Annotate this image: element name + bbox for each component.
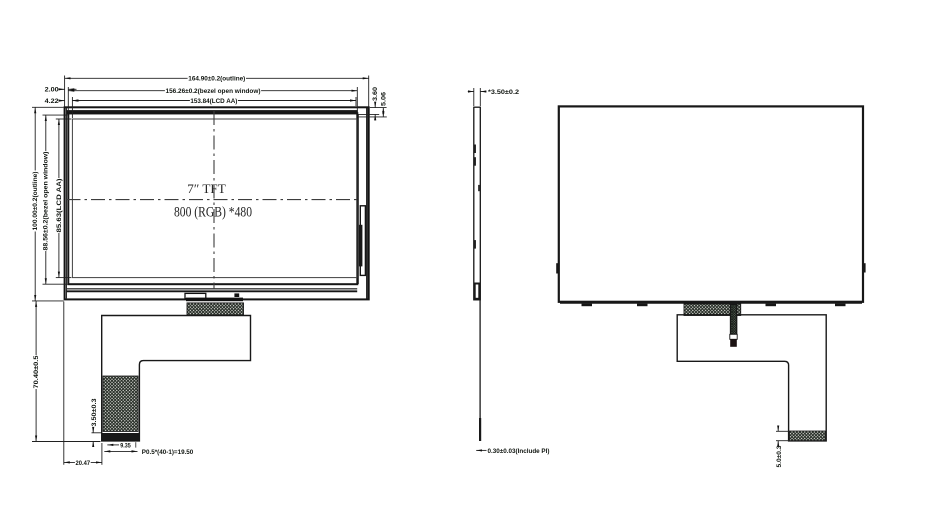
svg-text:164.90±0.2(outline): 164.90±0.2(outline) bbox=[188, 76, 245, 83]
svg-text:800 (RGB) *480: 800 (RGB) *480 bbox=[174, 204, 252, 220]
svg-text:7″ TFT: 7″ TFT bbox=[187, 181, 226, 196]
svg-text:0.30±0.03(Include PI): 0.30±0.03(Include PI) bbox=[488, 448, 550, 455]
svg-text:85.63(LCD AA): 85.63(LCD AA) bbox=[56, 179, 63, 233]
svg-text:3.50±0.3: 3.50±0.3 bbox=[91, 398, 98, 426]
svg-text:9.35: 9.35 bbox=[120, 442, 131, 449]
svg-text:3.60: 3.60 bbox=[372, 87, 379, 101]
svg-text:5.0±0.3: 5.0±0.3 bbox=[776, 445, 783, 467]
svg-text:*3.50±0.2: *3.50±0.2 bbox=[488, 89, 519, 96]
svg-text:100.00±0.2(outline): 100.00±0.2(outline) bbox=[32, 172, 39, 231]
svg-text:4.22: 4.22 bbox=[45, 98, 59, 105]
svg-text:5.06: 5.06 bbox=[380, 92, 387, 106]
svg-text:P0.5*(40-1)=19.50: P0.5*(40-1)=19.50 bbox=[142, 449, 194, 456]
svg-text:156.26±0.2(bezel open window): 156.26±0.2(bezel open window) bbox=[166, 88, 261, 95]
svg-text:20.47: 20.47 bbox=[76, 460, 91, 467]
svg-text:2.00: 2.00 bbox=[45, 87, 59, 94]
svg-text:88.56±0.2(bezel open window): 88.56±0.2(bezel open window) bbox=[43, 152, 50, 251]
svg-text:70.40±0.5: 70.40±0.5 bbox=[33, 355, 40, 388]
svg-text:153.84(LCD AA): 153.84(LCD AA) bbox=[190, 98, 237, 105]
